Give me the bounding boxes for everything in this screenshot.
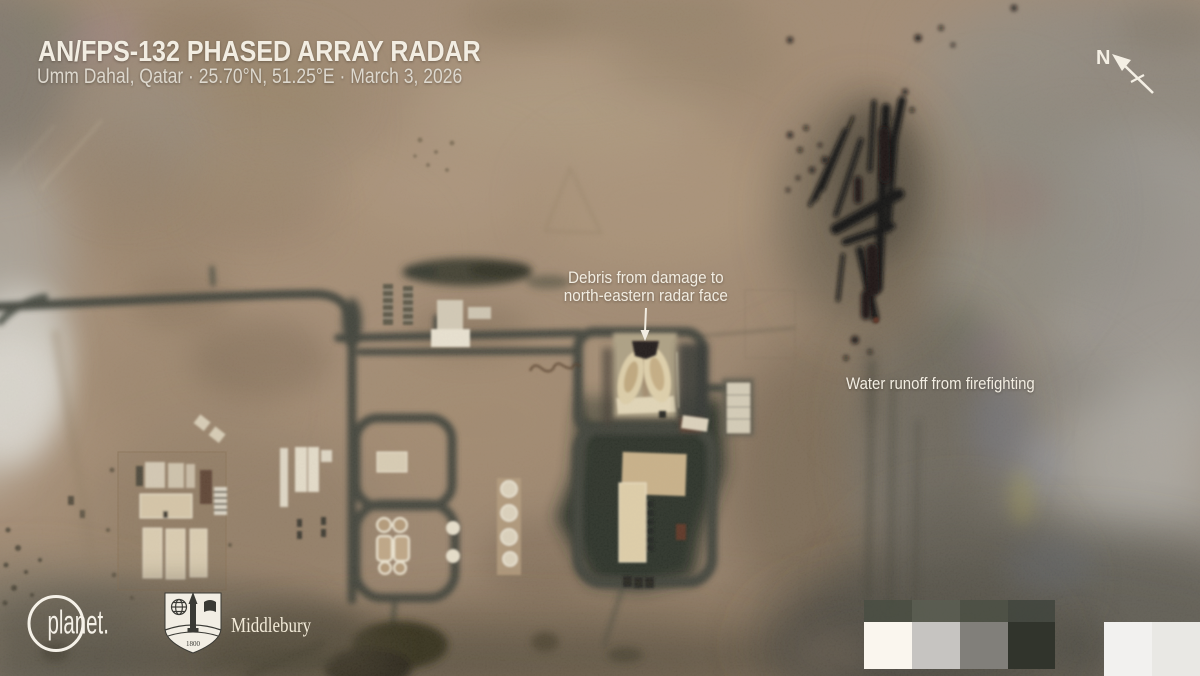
svg-text:N: N bbox=[1096, 47, 1110, 69]
svg-text:Middlebury: Middlebury bbox=[231, 614, 311, 637]
svg-text:1800: 1800 bbox=[186, 640, 201, 648]
svg-text:planet.: planet. bbox=[48, 603, 109, 640]
